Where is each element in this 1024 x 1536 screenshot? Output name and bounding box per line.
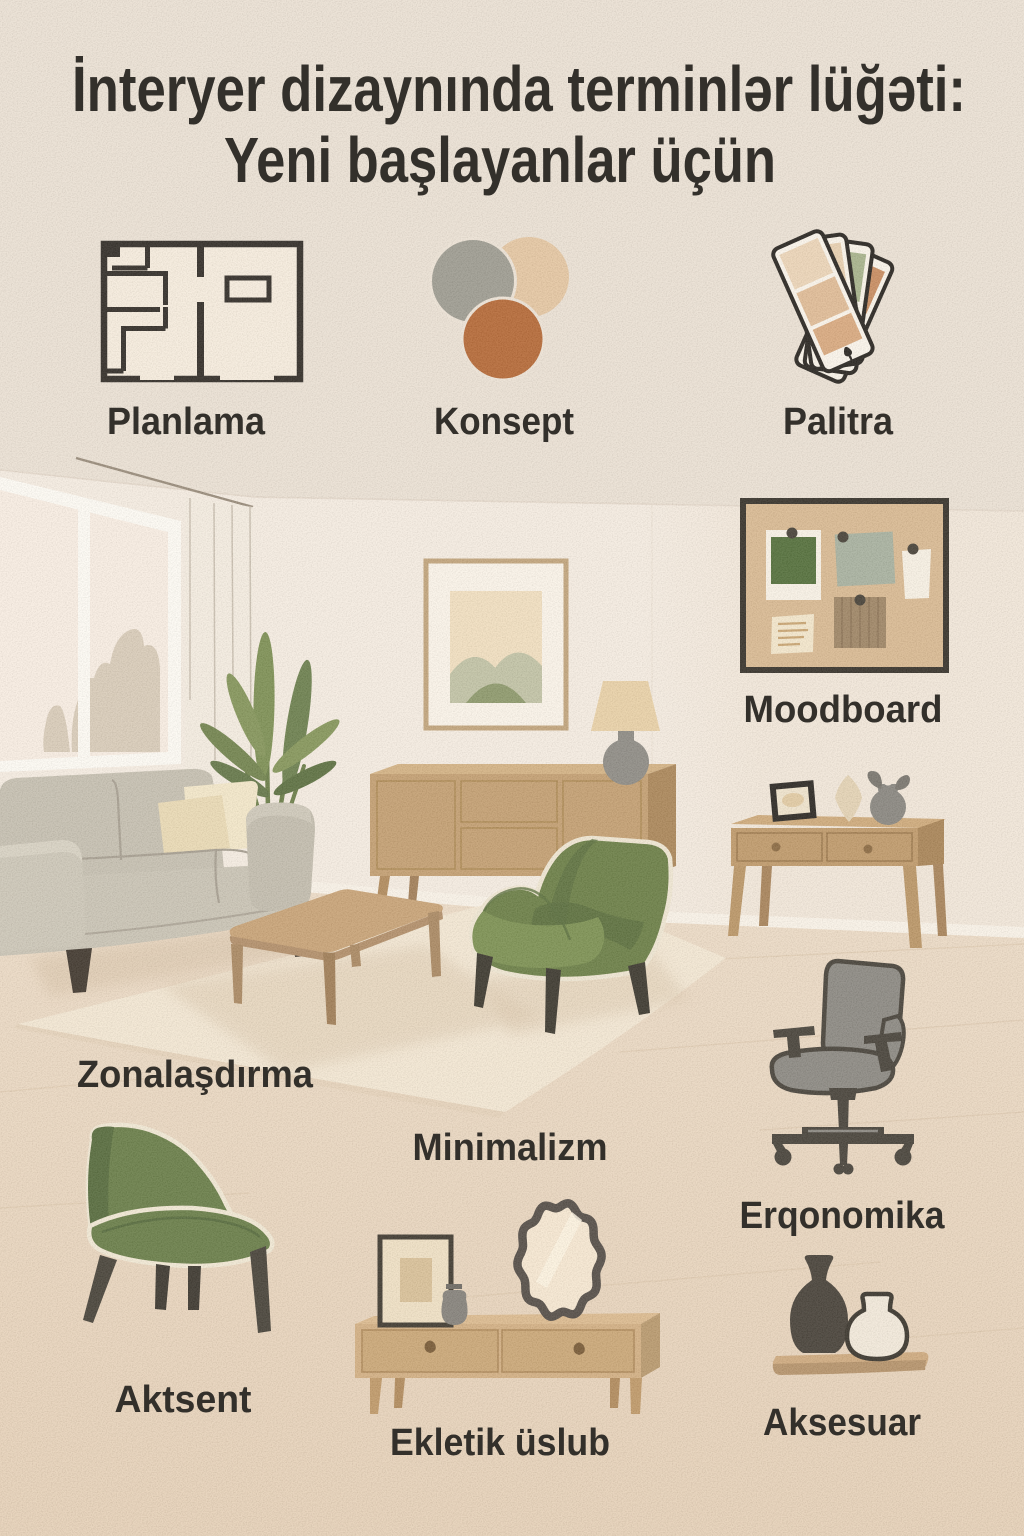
svg-text:Ekletik üslub: Ekletik üslub bbox=[390, 1422, 610, 1464]
svg-text:Konsept: Konsept bbox=[434, 401, 574, 443]
svg-text:Palitra: Palitra bbox=[783, 401, 894, 443]
svg-text:İnteryer dizaynında terminlər: İnteryer dizaynında terminlər lüğəti: bbox=[72, 53, 966, 125]
svg-text:Zonalaşdırma: Zonalaşdırma bbox=[77, 1054, 314, 1096]
svg-text:Moodboard: Moodboard bbox=[744, 689, 943, 731]
svg-text:Erqonomika: Erqonomika bbox=[740, 1195, 946, 1237]
svg-text:Aktsent: Aktsent bbox=[115, 1379, 252, 1421]
svg-text:Planlama: Planlama bbox=[107, 401, 266, 443]
svg-text:Aksesuar: Aksesuar bbox=[763, 1402, 921, 1444]
svg-text:Yeni başlayanlar üçün: Yeni başlayanlar üçün bbox=[224, 124, 776, 196]
svg-text:Minimalizm: Minimalizm bbox=[413, 1127, 608, 1169]
